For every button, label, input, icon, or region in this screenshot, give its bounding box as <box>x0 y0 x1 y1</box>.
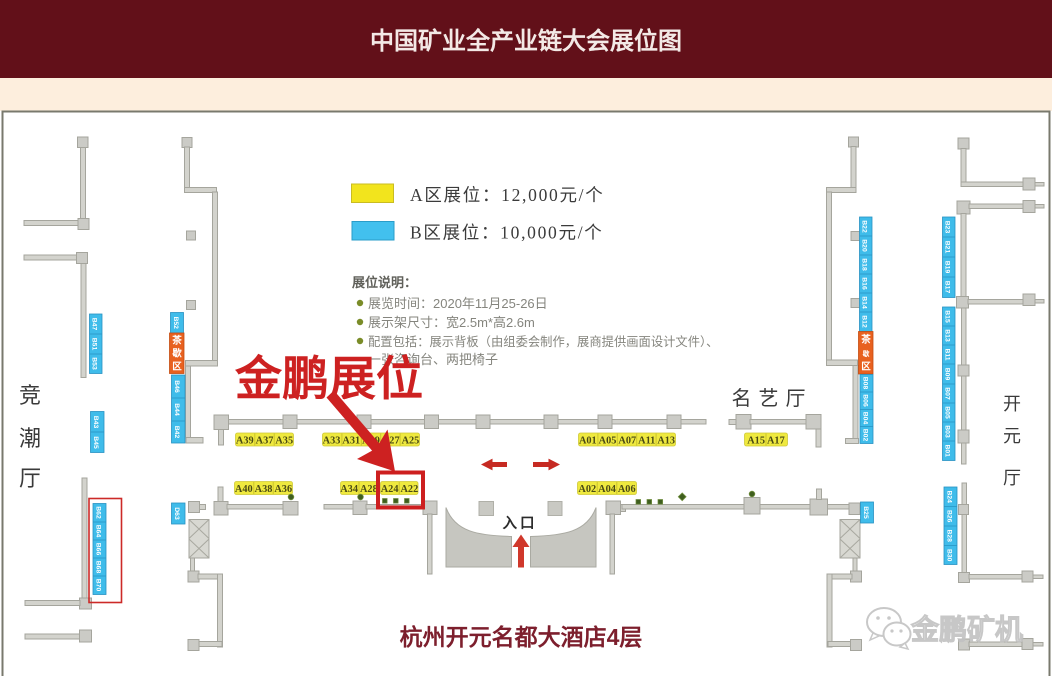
svg-text:B15: B15 <box>944 310 951 323</box>
svg-text:B68: B68 <box>95 561 102 574</box>
svg-text:B19: B19 <box>944 261 951 274</box>
svg-text:B16: B16 <box>861 277 868 290</box>
svg-text:展览时间：2020年11月25-26日: 展览时间：2020年11月25-26日 <box>368 296 548 311</box>
svg-text:厅: 厅 <box>19 466 41 491</box>
svg-text:茶: 茶 <box>860 334 871 346</box>
svg-text:元: 元 <box>1003 426 1021 446</box>
svg-text:B07: B07 <box>944 387 951 400</box>
svg-text:歇: 歇 <box>862 349 870 358</box>
svg-text:B28: B28 <box>946 529 953 542</box>
svg-text:B09: B09 <box>944 368 951 381</box>
svg-text:展位说明：: 展位说明： <box>352 275 417 290</box>
svg-text:中国矿业全产业链大会展位图: 中国矿业全产业链大会展位图 <box>370 27 682 55</box>
svg-text:杭州开元名都大酒店4层: 杭州开元名都大酒店4层 <box>400 624 643 650</box>
svg-text:B66: B66 <box>95 543 102 556</box>
svg-text:名艺厅: 名艺厅 <box>732 387 813 410</box>
svg-text:B23: B23 <box>944 221 951 234</box>
svg-text:B04: B04 <box>862 412 869 425</box>
svg-text:B53: B53 <box>91 357 98 370</box>
svg-text:B42: B42 <box>173 426 180 439</box>
svg-text:B44: B44 <box>173 403 180 416</box>
svg-text:B02: B02 <box>862 429 869 442</box>
svg-text:A01 A05 A07 A11 A13: A01 A05 A07 A11 A13 <box>579 436 675 447</box>
svg-text:B区展位：10,000元/个: B区展位：10,000元/个 <box>410 223 603 243</box>
svg-text:B62: B62 <box>95 506 102 519</box>
svg-text:B64: B64 <box>95 525 102 538</box>
svg-text:竞: 竞 <box>19 383 41 408</box>
svg-text:区: 区 <box>861 362 871 373</box>
svg-text:B13: B13 <box>944 329 951 342</box>
svg-text:A区展位：12,000元/个: A区展位：12,000元/个 <box>410 185 604 205</box>
svg-text:A39 A37 A35: A39 A37 A35 <box>236 436 293 447</box>
svg-text:B14: B14 <box>861 296 868 309</box>
svg-text:区: 区 <box>172 362 182 373</box>
svg-text:B12: B12 <box>861 315 868 328</box>
svg-text:B30: B30 <box>946 549 953 562</box>
svg-text:B01: B01 <box>944 444 951 457</box>
svg-text:B20: B20 <box>861 239 868 252</box>
svg-text:歇: 歇 <box>171 348 182 360</box>
svg-text:B70: B70 <box>95 579 102 592</box>
svg-text:A40 A38 A36: A40 A38 A36 <box>235 484 292 495</box>
svg-text:A02 A04 A06: A02 A04 A06 <box>578 484 635 495</box>
svg-text:B08: B08 <box>862 377 869 390</box>
svg-text:B25: B25 <box>862 506 869 519</box>
svg-text:B21: B21 <box>944 241 951 254</box>
svg-text:厅: 厅 <box>1003 468 1021 488</box>
svg-text:开: 开 <box>1003 394 1021 414</box>
svg-text:B26: B26 <box>946 510 953 523</box>
svg-text:B47: B47 <box>91 318 98 331</box>
svg-text:B18: B18 <box>861 258 868 271</box>
svg-text:B52: B52 <box>172 316 179 329</box>
svg-text:B46: B46 <box>173 380 180 393</box>
svg-text:潮: 潮 <box>19 426 41 451</box>
svg-text:B03: B03 <box>944 425 951 438</box>
svg-text:茶: 茶 <box>171 335 182 347</box>
svg-text:入口: 入口 <box>503 515 538 532</box>
svg-text:B43: B43 <box>92 416 99 429</box>
svg-text:配置包括：展示背板（由组委会制作，展商提供画面设计文件）、: 配置包括：展示背板（由组委会制作，展商提供画面设计文件）、 <box>368 334 718 349</box>
svg-text:B05: B05 <box>944 406 951 419</box>
svg-text:B11: B11 <box>944 348 951 360</box>
svg-text:D63: D63 <box>173 507 180 520</box>
svg-text:B51: B51 <box>91 338 98 351</box>
svg-text:展示架尺寸：宽2.5m*高2.6m: 展示架尺寸：宽2.5m*高2.6m <box>368 315 535 330</box>
svg-text:B06: B06 <box>862 394 869 407</box>
svg-text:B22: B22 <box>861 220 868 233</box>
svg-text:B17: B17 <box>944 281 951 294</box>
svg-text:B24: B24 <box>946 490 953 503</box>
svg-text:B45: B45 <box>92 436 99 449</box>
svg-text:金鹏矿机: 金鹏矿机 <box>910 613 1023 645</box>
